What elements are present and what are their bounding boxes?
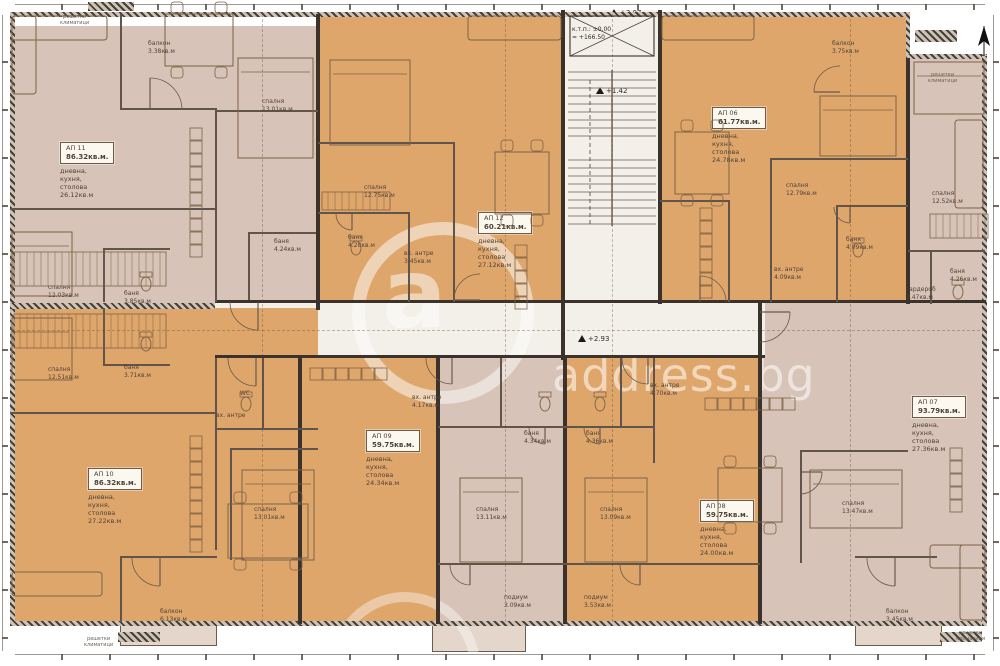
bed-icon [460,478,522,562]
furniture-layer [0,0,1000,666]
kitchen-unit-icon [950,461,962,473]
bed-icon [12,318,72,380]
kitchen-unit-icon [190,449,202,461]
chair-icon [724,523,736,534]
kitchen-unit-icon [757,398,769,410]
kitchen-unit-icon [731,398,743,410]
dining-table-icon [165,14,233,66]
chair-icon [711,120,723,131]
chair-icon [290,559,302,570]
sofa-icon [960,545,985,620]
door-swing-arc [132,558,160,586]
toilet-icon [953,285,963,299]
chair-icon [290,492,302,503]
sofa-icon [12,572,102,596]
kitchen-unit-icon [700,286,712,298]
sofa-icon [468,16,561,40]
sofa-icon [930,545,985,568]
kitchen-unit-icon [190,436,202,448]
chair-icon [234,492,246,503]
bed-icon [810,470,902,528]
bed-icon [238,58,313,158]
kitchen-unit-icon [190,462,202,474]
door-swing-arc [450,565,470,585]
kitchen-unit-icon [336,368,348,380]
dining-table-icon [228,504,308,558]
door-swing-arc [336,214,352,230]
kitchen-unit-icon [700,273,712,285]
sofa-icon [12,16,107,40]
sofa-icon [12,16,36,94]
kitchen-unit-icon [190,180,202,192]
kitchen-unit-icon [190,514,202,526]
dining-table-icon [675,132,729,194]
kitchen-unit-icon [190,540,202,552]
door-swing-arc [834,207,850,223]
door-swing-arc [800,472,822,494]
chair-icon [764,523,776,534]
door-swing-arc [426,358,452,384]
door-swing-arc [454,274,480,300]
door-swing-arc [228,358,256,386]
kitchen-unit-icon [744,398,756,410]
kitchen-unit-icon [515,258,527,270]
door-swing-arc [620,565,640,585]
toilet-tank-icon [539,392,551,397]
chair-icon [764,456,776,467]
kitchen-unit-icon [323,368,335,380]
kitchen-unit-icon [190,232,202,244]
kitchen-unit-icon [718,398,730,410]
toilet-tank-icon [594,392,606,397]
kitchen-unit-icon [705,398,717,410]
toilet-icon [540,397,550,411]
door-swing-arc [622,358,648,384]
chair-icon [501,215,513,226]
door-swing-arc [867,558,895,586]
kitchen-unit-icon [190,193,202,205]
toilet-tank-icon [240,392,252,397]
kitchen-unit-icon [700,208,712,220]
bed-icon [330,60,410,145]
chair-icon [724,456,736,467]
door-swing-arc [584,428,600,444]
kitchen-unit-icon [190,488,202,500]
kitchen-unit-icon [190,167,202,179]
door-swing-arc [150,78,182,110]
kitchen-unit-icon [190,245,202,257]
chair-icon [171,67,183,78]
toilet-tank-icon [852,238,864,243]
door-swing-arc [760,312,790,342]
chair-icon [531,215,543,226]
door-swing-arc [529,428,545,444]
bed-icon [242,470,314,560]
wardrobe-icon [930,214,988,238]
kitchen-unit-icon [190,501,202,513]
kitchen-unit-icon [190,128,202,140]
kitchen-unit-icon [950,448,962,460]
kitchen-unit-icon [950,474,962,486]
chair-icon [501,140,513,151]
kitchen-unit-icon [515,284,527,296]
sofa-icon [955,120,983,208]
kitchen-unit-icon [310,368,322,380]
kitchen-unit-icon [190,527,202,539]
chair-icon [171,2,183,13]
chair-icon [234,559,246,570]
dining-table-icon [718,468,782,522]
kitchen-unit-icon [362,368,374,380]
kitchen-unit-icon [950,487,962,499]
kitchen-unit-icon [770,398,782,410]
sofa-icon [662,16,754,40]
kitchen-unit-icon [190,475,202,487]
kitchen-unit-icon [190,219,202,231]
door-swing-arc [814,66,840,92]
chair-icon [681,195,693,206]
bed-icon [820,96,896,156]
kitchen-unit-icon [190,206,202,218]
kitchen-unit-icon [700,221,712,233]
door-swing-arc [230,302,258,330]
toilet-icon [241,397,251,411]
dining-table-icon [495,152,549,214]
kitchen-unit-icon [700,247,712,259]
chair-icon [711,195,723,206]
floor-plan: a address.bg +3.07 к.т.п.: ±0.00= +166.5… [0,0,1000,666]
toilet-tank-icon [952,280,964,285]
kitchen-unit-icon [515,245,527,257]
kitchen-unit-icon [190,141,202,153]
kitchen-unit-icon [375,368,387,380]
toilet-icon [853,243,863,257]
bed-icon [914,62,984,114]
kitchen-unit-icon [349,368,361,380]
chair-icon [681,120,693,131]
chair-icon [531,140,543,151]
kitchen-unit-icon [515,297,527,309]
kitchen-unit-icon [700,260,712,272]
kitchen-unit-icon [190,154,202,166]
toilet-icon [351,241,361,255]
toilet-icon [595,397,605,411]
toilet-tank-icon [350,236,362,241]
kitchen-unit-icon [950,500,962,512]
chair-icon [215,67,227,78]
kitchen-unit-icon [783,398,795,410]
chair-icon [215,2,227,13]
kitchen-unit-icon [700,234,712,246]
kitchen-unit-icon [515,271,527,283]
bed-icon [585,478,647,562]
